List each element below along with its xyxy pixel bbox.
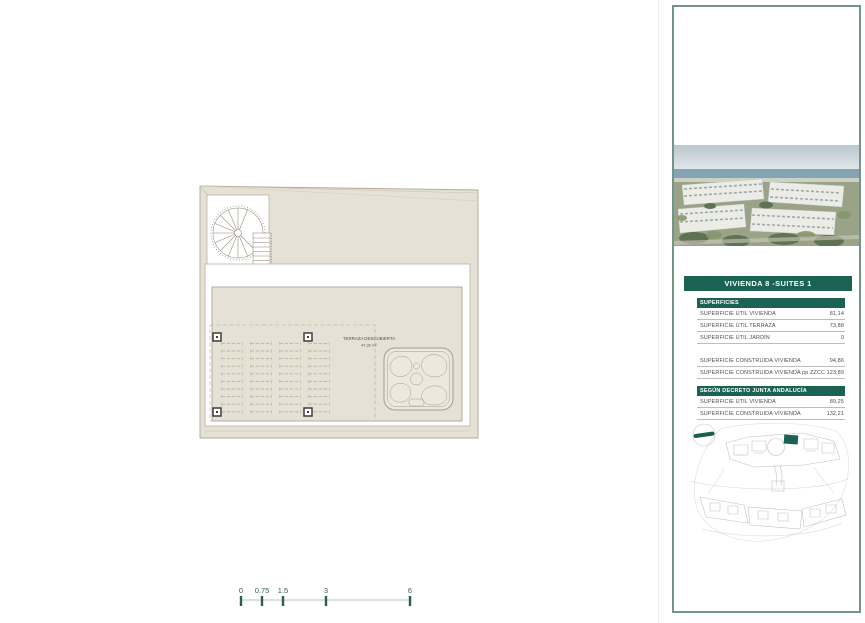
pergola-slats — [218, 340, 330, 416]
table-row: SUPERFICIE CONSTRUIDA VIVIENDA 94,86 — [697, 355, 845, 367]
floor-plan-drawing: TERRAZA DESCUBIERTA 47,32 m² — [190, 180, 490, 445]
row-value: 73,88 — [830, 323, 844, 329]
row-label: SUPERFICIE ÚTIL TERRAZA — [700, 323, 776, 329]
scale-bar: 0 0.75 1.5 3 6 — [230, 583, 420, 611]
scale-label-15: 1.5 — [278, 586, 288, 595]
row-label: SUPERFICIE ÚTIL VIVIENDA — [700, 399, 776, 405]
scale-label-3: 3 — [324, 586, 328, 595]
compass-needle — [693, 431, 714, 438]
table-header-decreto: SEGÚN DECRETO JUNTA ANDALUCÍA — [697, 386, 845, 396]
table-row: SUPERFICIE ÚTIL TERRAZA 73,88 — [697, 320, 845, 332]
site-key-plan — [684, 419, 854, 551]
info-sidebar: VIVIENDA 8 -SUITES 1 SUPERFICIES SUPERFI… — [672, 5, 861, 613]
jacuzzi — [384, 348, 453, 410]
room-label: TERRAZA DESCUBIERTA — [343, 336, 395, 341]
surface-tables: SUPERFICIES SUPERFICIE ÚTIL VIVIENDA 81,… — [697, 298, 845, 420]
table-header-superficies: SUPERFICIES — [697, 298, 845, 308]
table-row: SUPERFICIE ÚTIL VIVIENDA 89,25 — [697, 396, 845, 408]
scale-label-6: 6 — [408, 586, 412, 595]
scale-bar-drawing: 0 0.75 1.5 3 6 — [230, 583, 420, 611]
row-value: 123,89 — [827, 370, 844, 376]
row-label: SUPERFICIE CONSTRUIDA VIVIENDA — [700, 358, 801, 364]
unit-title: VIVIENDA 8 -SUITES 1 — [684, 276, 852, 291]
highlighted-unit — [784, 435, 799, 445]
row-value: 132,21 — [827, 411, 844, 417]
row-label: SUPERFICIE CONSTRUIDA VIVIENDA — [700, 411, 801, 417]
row-label: SUPERFICIE ÚTIL JARDÍN — [700, 335, 770, 341]
page-divider — [658, 0, 659, 623]
brochure-page: { "page": { "background": "#ffffff" }, "… — [0, 0, 865, 623]
table-row: SUPERFICIE CONSTRUIDA VIVIENDA pp.ZZCC 1… — [697, 367, 845, 379]
scale-label-075: 0.75 — [255, 586, 270, 595]
row-label: SUPERFICIE CONSTRUIDA VIVIENDA pp.ZZCC — [700, 370, 825, 376]
aerial-photo — [674, 145, 859, 246]
row-value: 81,14 — [830, 311, 844, 317]
row-label: SUPERFICIE ÚTIL VIVIENDA — [700, 311, 776, 317]
row-value: 94,86 — [830, 358, 844, 364]
table-row: SUPERFICIE ÚTIL VIVIENDA 81,14 — [697, 308, 845, 320]
room-area: 47,32 m² — [361, 343, 377, 348]
scale-label-0: 0 — [239, 586, 243, 595]
row-value: 89,25 — [830, 399, 844, 405]
table-row: SUPERFICIE ÚTIL JARDÍN 0 — [697, 332, 845, 344]
row-value: 0 — [841, 335, 844, 341]
floor-plan: TERRAZA DESCUBIERTA 47,32 m² — [190, 180, 490, 445]
